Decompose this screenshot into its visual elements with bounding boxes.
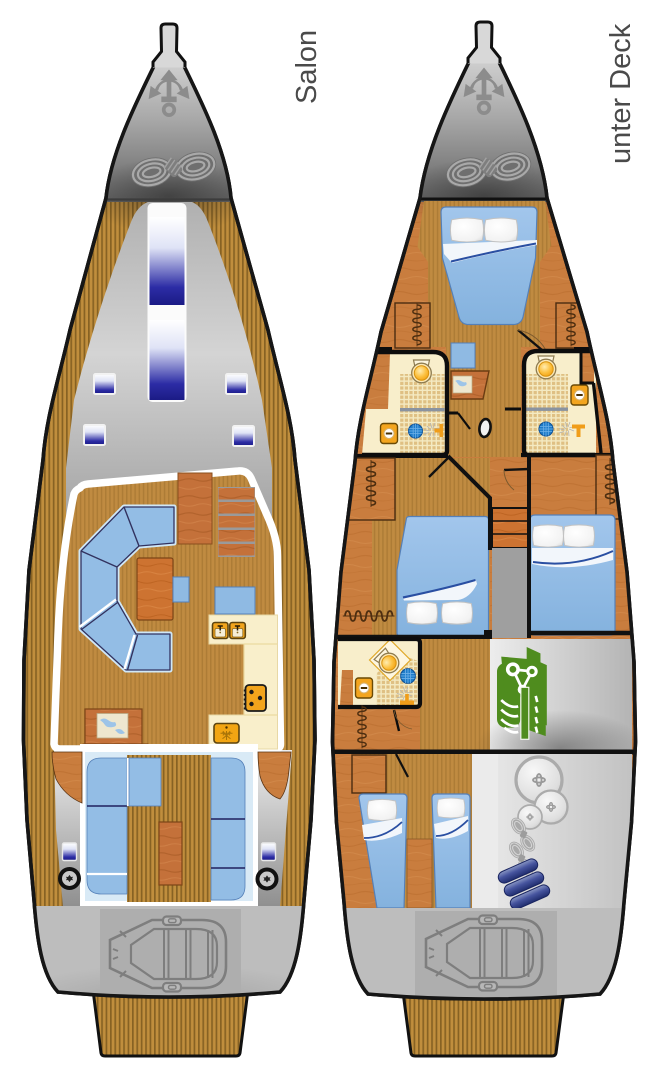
svg-text:Salon: Salon xyxy=(291,30,323,104)
svg-text:unter Deck: unter Deck xyxy=(605,23,637,164)
